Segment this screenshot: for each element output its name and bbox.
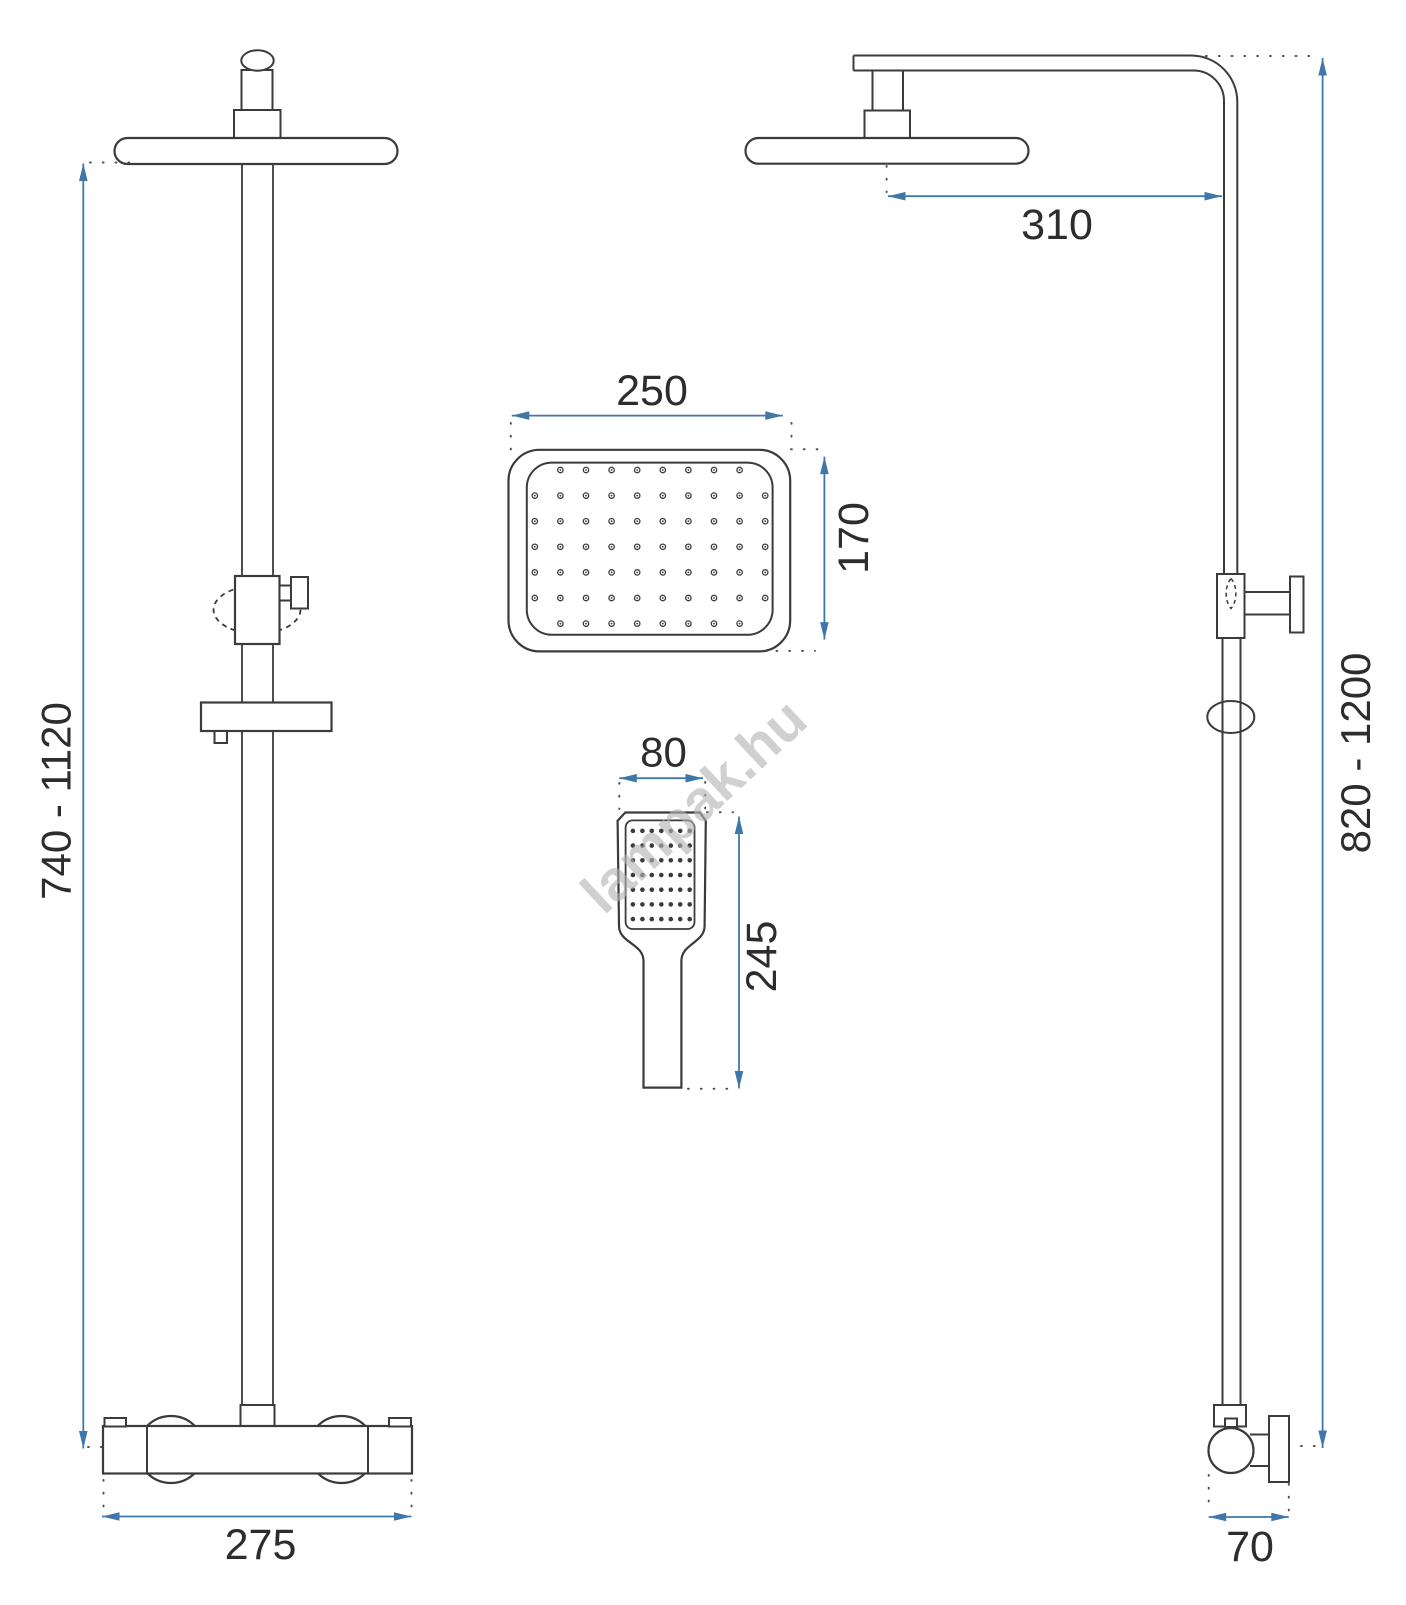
svg-text:275: 275 [225,1521,297,1569]
svg-text:820 - 1200: 820 - 1200 [1332,653,1379,854]
svg-text:170: 170 [830,502,878,574]
svg-text:80: 80 [640,729,687,776]
svg-text:310: 310 [1021,201,1093,249]
svg-text:740 - 1120: 740 - 1120 [33,702,80,900]
svg-text:245: 245 [738,921,786,993]
svg-text:250: 250 [616,367,688,415]
svg-text:70: 70 [1226,1523,1274,1571]
